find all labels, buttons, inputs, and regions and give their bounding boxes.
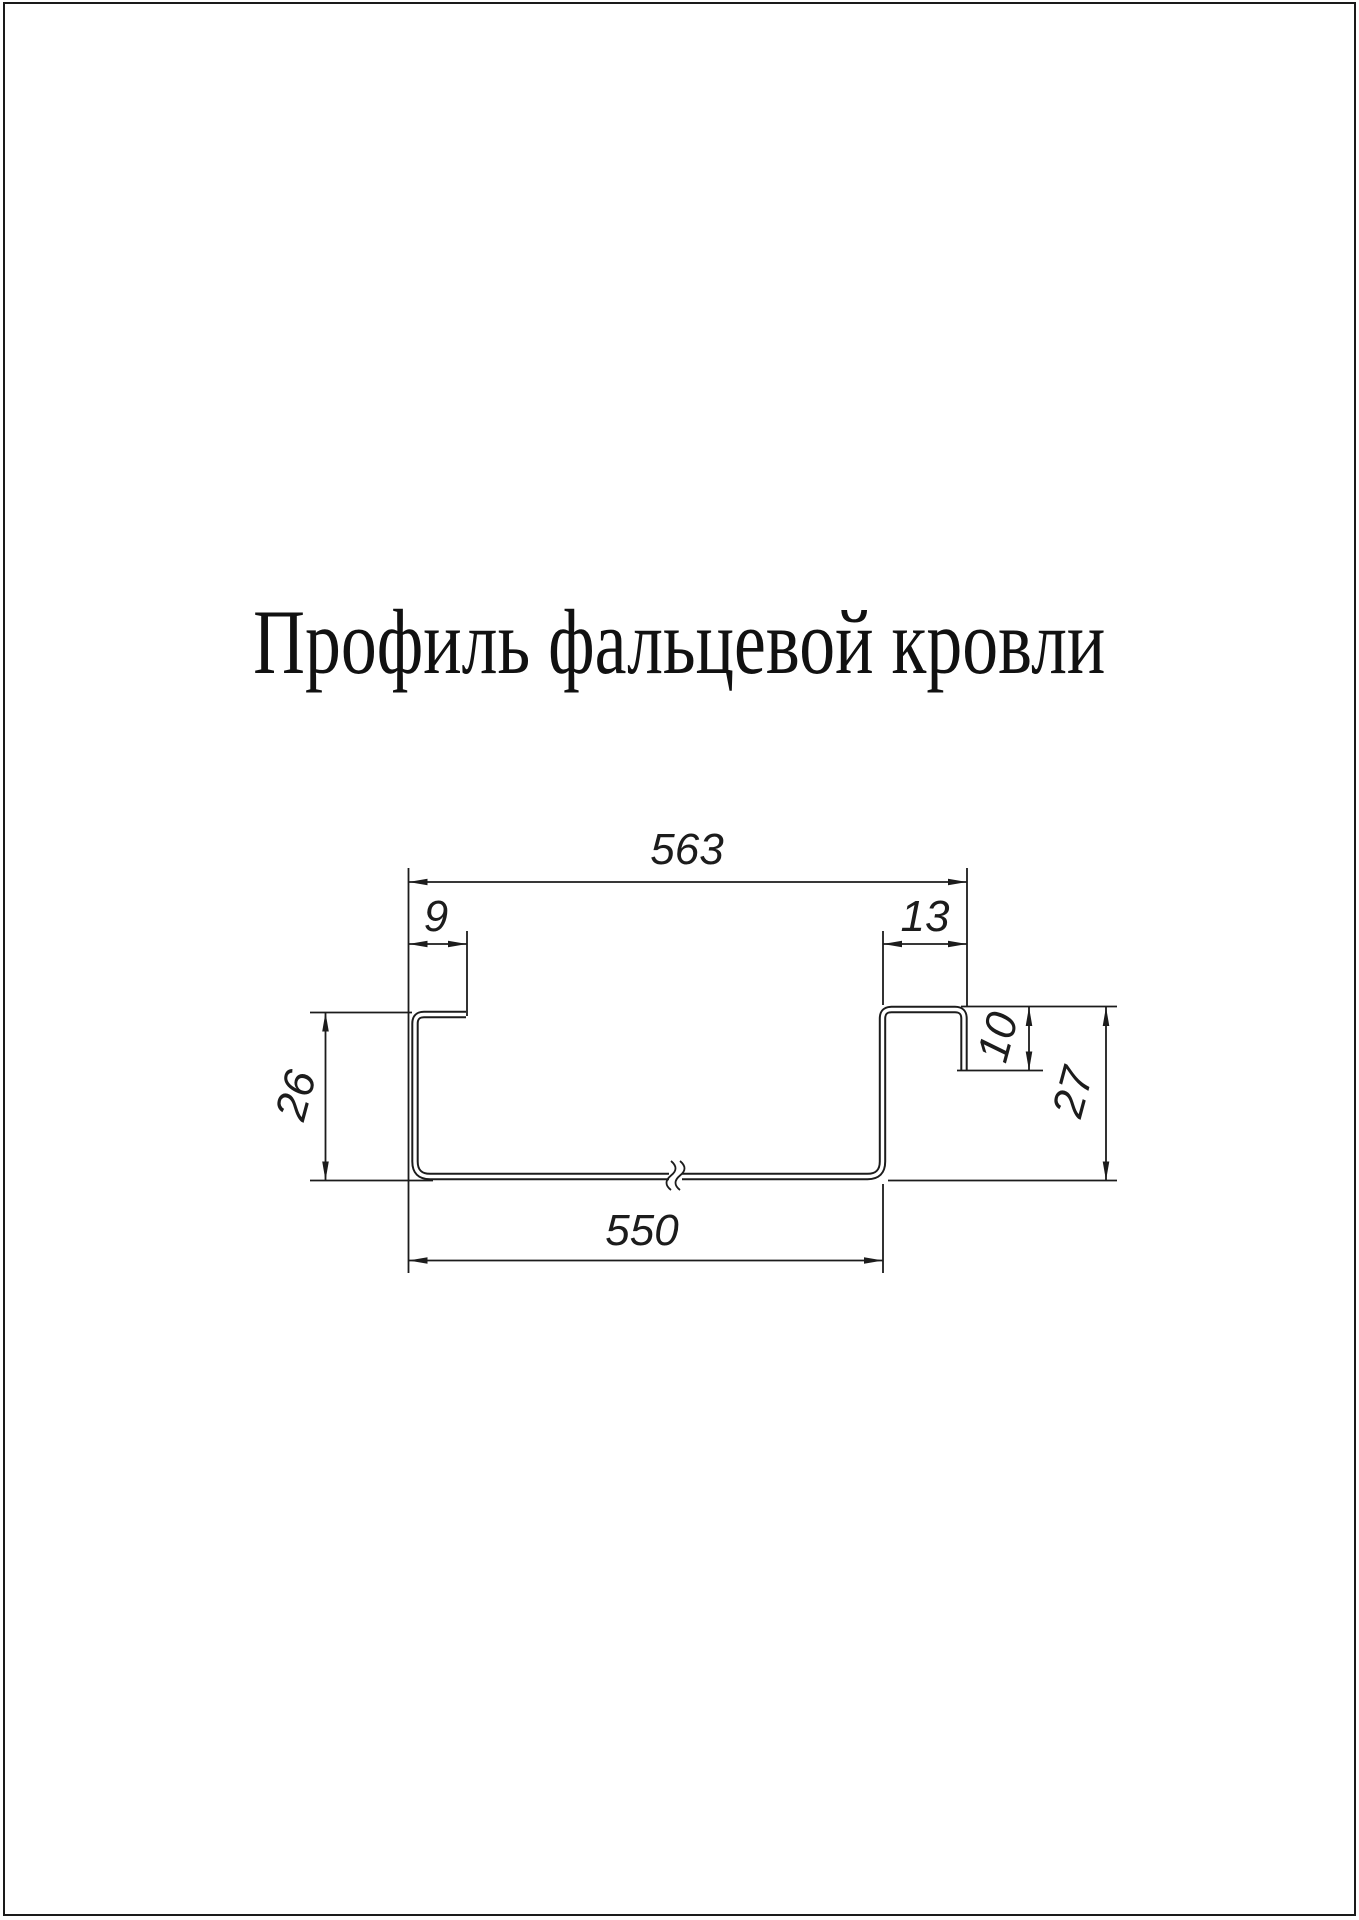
arrow-13-left bbox=[883, 941, 902, 948]
arrow-13-right bbox=[948, 941, 967, 948]
arrow-9-left bbox=[409, 941, 428, 948]
arrow-10-down bbox=[1026, 1052, 1033, 1071]
dimension-right-height: 27 bbox=[1043, 1007, 1110, 1181]
arrow-550-left bbox=[409, 1257, 428, 1264]
arrow-563-right bbox=[948, 879, 967, 886]
arrow-27-up bbox=[1103, 1007, 1110, 1026]
dimension-overall-top-width: 563 bbox=[409, 825, 968, 885]
dim-27-label: 27 bbox=[1043, 1061, 1104, 1123]
dimension-left-height: 26 bbox=[266, 1013, 329, 1181]
arrow-27-down bbox=[1103, 1162, 1110, 1181]
dimension-left-flange-width: 9 bbox=[409, 892, 468, 947]
arrow-550-right bbox=[864, 1257, 883, 1264]
dim-26-label: 26 bbox=[266, 1065, 326, 1126]
profile-inner-core bbox=[415, 1010, 964, 1177]
dimension-seam-leg-height: 10 bbox=[968, 1007, 1032, 1071]
drawing-sheet: Профиль фальцевой кровли bbox=[0, 0, 1359, 1920]
arrow-9-right bbox=[448, 941, 467, 948]
dim-563-label: 563 bbox=[650, 825, 724, 874]
arrow-26-down bbox=[322, 1162, 329, 1181]
arrow-563-left bbox=[409, 879, 428, 886]
dimension-right-flange-width: 13 bbox=[883, 892, 967, 947]
profile-drawing: 563 9 13 26 10 bbox=[0, 0, 1359, 1920]
dim-13-label: 13 bbox=[901, 892, 950, 941]
dim-9-label: 9 bbox=[424, 892, 448, 941]
dim-550-label: 550 bbox=[605, 1206, 679, 1255]
profile-outline bbox=[415, 1010, 964, 1191]
arrow-26-up bbox=[322, 1013, 329, 1032]
dim-10-label: 10 bbox=[968, 1007, 1028, 1067]
dimension-bottom-width: 550 bbox=[409, 1206, 884, 1264]
